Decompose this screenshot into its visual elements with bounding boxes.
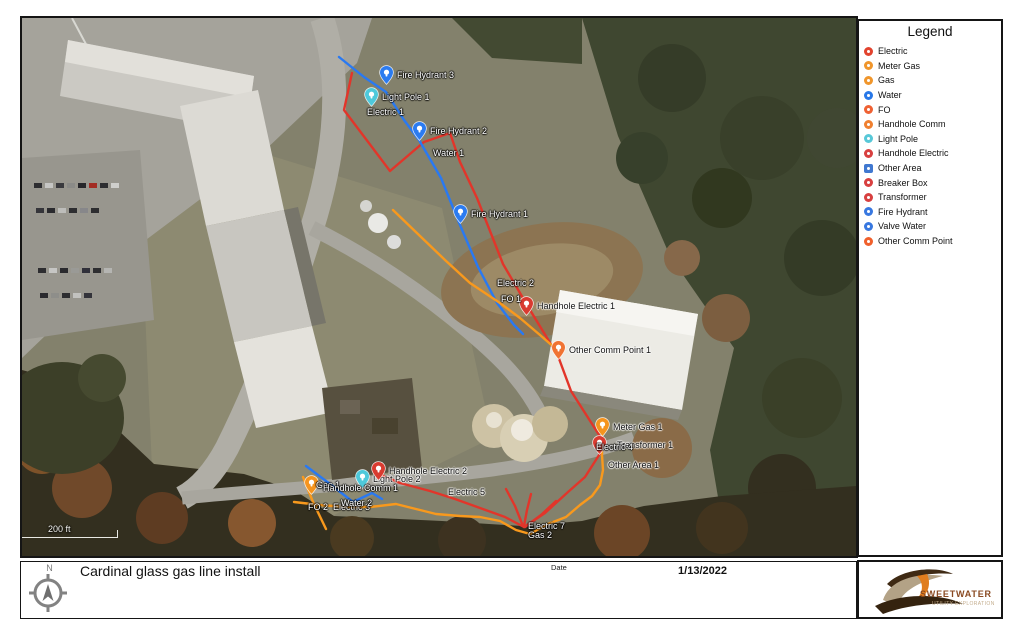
map-title-box: Cardinal glass gas line install xyxy=(77,561,551,619)
legend-item-label: Water xyxy=(878,90,902,100)
legend-item-label: Valve Water xyxy=(878,221,926,231)
legend-item-label: Light Pole xyxy=(878,134,918,144)
map-label-fo-1: FO 1 xyxy=(501,294,521,304)
handhole-comm-icon xyxy=(864,120,873,129)
map-label-water-2: Water 2 xyxy=(341,498,372,508)
legend-item-label: Transformer xyxy=(878,192,927,202)
map-label-electric-5: Electric 5 xyxy=(448,487,485,497)
legend-item-label: Fire Hydrant xyxy=(878,207,928,217)
other-comm-point-icon xyxy=(864,237,873,246)
valve-water-icon xyxy=(864,222,873,231)
legend-item-water: Water xyxy=(859,88,1001,103)
breaker-box-icon xyxy=(864,178,873,187)
legend-item-meter-gas: Meter Gas xyxy=(859,59,1001,74)
legend-item-label: Meter Gas xyxy=(878,61,920,71)
date-box: Date 1/13/2022 xyxy=(549,561,857,619)
fo-icon xyxy=(864,105,873,114)
legend-item-label: Other Comm Point xyxy=(878,236,953,246)
legend-item-other-area: Other Area xyxy=(859,161,1001,176)
water-icon xyxy=(864,91,873,100)
legend-item-label: Electric xyxy=(878,46,908,56)
north-arrow-icon xyxy=(21,564,76,618)
legend-panel: Legend ElectricMeter GasGasWaterFOHandho… xyxy=(857,19,1003,557)
scale-label: 200 ft xyxy=(48,524,71,534)
company-logo-box: SWEETWATER UTILITY EXPLORATION xyxy=(857,560,1003,619)
legend-item-label: Handhole Comm xyxy=(878,119,946,129)
legend-item-fo: FO xyxy=(859,102,1001,117)
map-label-electric-4: Electric 4 xyxy=(596,442,633,452)
scale-bar-tick xyxy=(117,530,118,538)
map-label-electric-1: Electric 1 xyxy=(367,107,404,117)
legend-item-light-pole: Light Pole xyxy=(859,132,1001,147)
legend-item-other-comm-point: Other Comm Point xyxy=(859,234,1001,249)
map-label-other-area-1: Other Area 1 xyxy=(608,460,659,470)
gas-icon xyxy=(864,76,873,85)
legend-item-label: Gas xyxy=(878,75,895,85)
handhole-electric-icon xyxy=(864,149,873,158)
scale-bar xyxy=(22,537,118,538)
map-label-fo-2: FO 2 xyxy=(308,502,328,512)
legend-item-handhole-electric: Handhole Electric xyxy=(859,146,1001,161)
map-labels-layer: Electric 1Water 1Electric 2FO 1Electric … xyxy=(22,18,856,556)
map-label-handhole-comm-1: Handhole Comm 1 xyxy=(323,483,398,493)
transformer-icon xyxy=(864,193,873,202)
other-area-icon xyxy=(864,164,873,173)
legend-item-valve-water: Valve Water xyxy=(859,219,1001,234)
legend-item-electric: Electric xyxy=(859,44,1001,59)
legend-item-fire-hydrant: Fire Hydrant xyxy=(859,205,1001,220)
legend-item-label: FO xyxy=(878,105,891,115)
map-viewport: Fire Hydrant 3Light Pole 1Fire Hydrant 2… xyxy=(20,16,858,558)
legend-title: Legend xyxy=(859,21,1001,39)
map-label-water-1: Water 1 xyxy=(433,148,464,158)
map-sheet: Fire Hydrant 3Light Pole 1Fire Hydrant 2… xyxy=(0,0,1022,636)
legend-item-handhole-comm: Handhole Comm xyxy=(859,117,1001,132)
legend-item-breaker-box: Breaker Box xyxy=(859,175,1001,190)
logo-wordmark: SWEETWATER xyxy=(920,589,992,599)
light-pole-icon xyxy=(864,134,873,143)
electric-icon xyxy=(864,47,873,56)
logo-tagline: UTILITY EXPLORATION xyxy=(932,601,995,607)
date-value: 1/13/2022 xyxy=(549,565,856,577)
legend-item-gas: Gas xyxy=(859,73,1001,88)
map-label-electric-2: Electric 2 xyxy=(497,278,534,288)
fire-hydrant-icon xyxy=(864,207,873,216)
legend-item-label: Other Area xyxy=(878,163,922,173)
legend-item-label: Handhole Electric xyxy=(878,148,949,158)
map-title: Cardinal glass gas line install xyxy=(80,563,261,579)
map-label-gas-2: Gas 2 xyxy=(528,530,552,540)
legend-item-label: Breaker Box xyxy=(878,178,928,188)
north-arrow-box: N xyxy=(20,561,79,619)
legend-item-transformer: Transformer xyxy=(859,190,1001,205)
meter-gas-icon xyxy=(864,61,873,70)
legend-items: ElectricMeter GasGasWaterFOHandhole Comm… xyxy=(859,44,1001,248)
